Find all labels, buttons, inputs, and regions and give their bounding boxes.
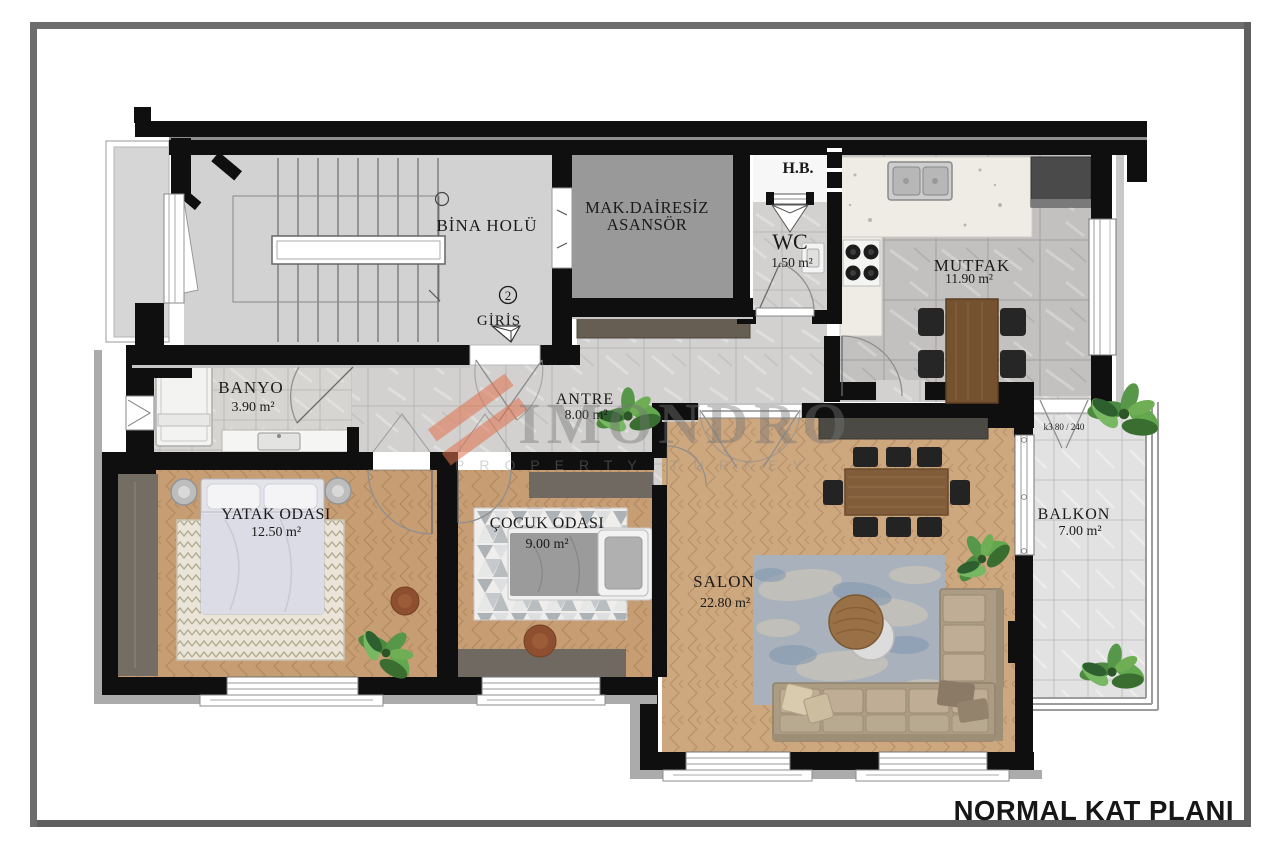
svg-text:IMONDRO: IMONDRO xyxy=(518,391,853,456)
svg-text:1.50 m²: 1.50 m² xyxy=(771,255,813,270)
svg-text:9.00 m²: 9.00 m² xyxy=(525,537,568,552)
svg-text:7.00 m²: 7.00 m² xyxy=(1058,524,1101,539)
svg-text:22.80 m²: 22.80 m² xyxy=(700,596,750,611)
svg-text:NORMAL KAT PLANI: NORMAL KAT PLANI xyxy=(954,795,1234,826)
svg-text:12.50 m²: 12.50 m² xyxy=(251,525,301,540)
svg-text:ASANSÖR: ASANSÖR xyxy=(607,215,688,234)
svg-text:3.90 m²: 3.90 m² xyxy=(231,400,274,415)
svg-text:H.B.: H.B. xyxy=(782,160,813,177)
svg-text:ÇOCUK ODASI: ÇOCUK ODASI xyxy=(490,515,604,532)
svg-text:YATAK ODASI: YATAK ODASI xyxy=(221,506,331,523)
svg-text:BANYO: BANYO xyxy=(218,378,283,397)
svg-text:SALON: SALON xyxy=(693,572,755,591)
svg-text:11.90 m²: 11.90 m² xyxy=(945,271,993,286)
svg-text:WC: WC xyxy=(772,229,807,254)
svg-text:2: 2 xyxy=(505,288,512,303)
svg-text:PROPERTY TURKEY: PROPERTY TURKEY xyxy=(455,457,817,473)
svg-text:BALKON: BALKON xyxy=(1038,506,1111,523)
svg-text:k3 80 / 240: k3 80 / 240 xyxy=(1044,422,1085,432)
svg-text:BİNA HOLÜ: BİNA HOLÜ xyxy=(436,216,537,235)
